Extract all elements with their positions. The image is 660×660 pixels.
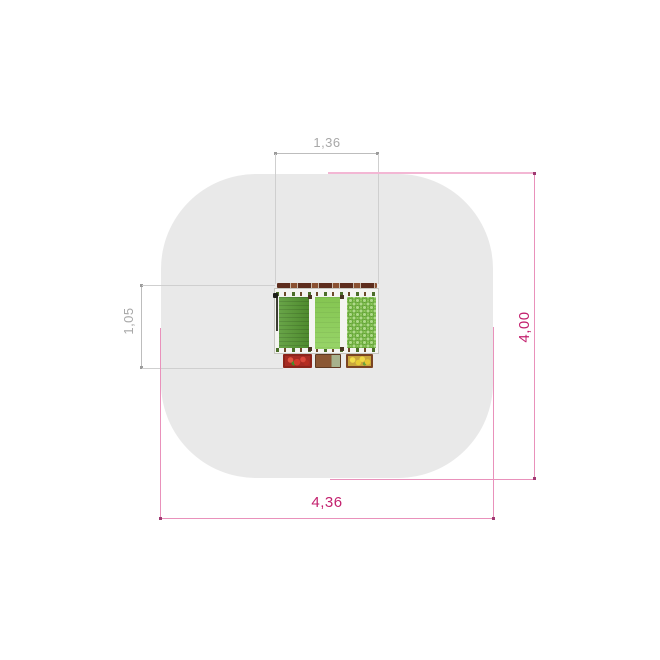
panel-bracket bbox=[308, 295, 312, 299]
leaf-panel-right bbox=[347, 297, 376, 348]
dimension-line bbox=[534, 173, 535, 479]
panel-bracket bbox=[308, 347, 312, 351]
clamp-strip-top bbox=[276, 292, 377, 296]
extension-line bbox=[160, 328, 161, 518]
dimension-line bbox=[141, 285, 142, 368]
dimension-line bbox=[275, 153, 378, 154]
soil-tray bbox=[315, 354, 341, 368]
dimension-line bbox=[161, 518, 494, 519]
grass-panel-middle bbox=[315, 297, 340, 349]
tomato-tray bbox=[283, 354, 312, 368]
extension-line bbox=[330, 479, 534, 480]
dimension-tick bbox=[533, 172, 536, 175]
extension-line bbox=[142, 368, 283, 369]
hose-clip bbox=[273, 293, 278, 298]
extension-line bbox=[493, 327, 494, 518]
dimension-tick bbox=[159, 517, 162, 520]
grass-panel-left bbox=[279, 297, 309, 348]
zone-width-label: 4,36 bbox=[295, 495, 359, 511]
dimension-tick bbox=[492, 517, 495, 520]
extension-line bbox=[142, 285, 275, 286]
panel-bracket bbox=[340, 295, 344, 299]
equipment-width-label: 1,36 bbox=[296, 135, 358, 151]
zone-height-label: 4,00 bbox=[517, 299, 533, 355]
flower-tray bbox=[346, 354, 373, 368]
equipment-depth-label: 1,05 bbox=[121, 301, 137, 341]
extension-line bbox=[275, 154, 276, 284]
plan-drawing: 1,36 1,05 4,00 4,36 bbox=[0, 0, 660, 660]
panel-bracket bbox=[340, 347, 344, 351]
extension-line bbox=[328, 172, 534, 174]
dimension-tick bbox=[533, 477, 536, 480]
hose-line bbox=[276, 295, 278, 331]
